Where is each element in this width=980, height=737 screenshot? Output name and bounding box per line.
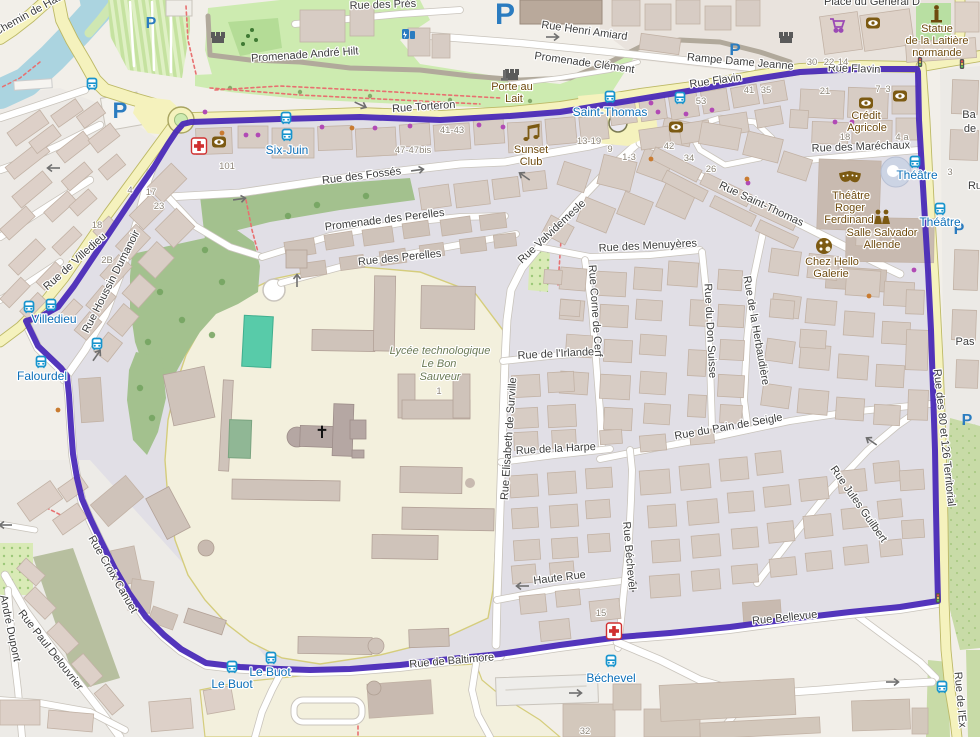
svg-text:de la Laitière: de la Laitière — [906, 35, 969, 47]
svg-text:Ba: Ba — [962, 109, 976, 121]
svg-text:1: 1 — [436, 386, 441, 397]
svg-text:Saint-Thomas: Saint-Thomas — [573, 105, 648, 119]
svg-text:Lait: Lait — [505, 93, 523, 105]
svg-text:3: 3 — [885, 84, 890, 95]
svg-text:Rue Flavin: Rue Flavin — [828, 62, 881, 76]
svg-text:Salle Salvador: Salle Salvador — [847, 227, 918, 239]
svg-text:Le Buot: Le Buot — [211, 677, 253, 691]
svg-text:P: P — [495, 0, 515, 31]
svg-text:Le Buot: Le Buot — [249, 665, 291, 679]
svg-text:41: 41 — [744, 85, 755, 96]
svg-text:Roger: Roger — [835, 202, 865, 214]
svg-text:35: 35 — [761, 85, 772, 96]
svg-text:Place du Général D: Place du Général D — [824, 0, 920, 8]
svg-text:13-19: 13-19 — [577, 136, 601, 147]
svg-text:Ferdinand: Ferdinand — [824, 214, 874, 226]
svg-text:Villedieu: Villedieu — [31, 312, 76, 326]
svg-text:Allende: Allende — [864, 239, 901, 251]
svg-text:✝: ✝ — [315, 423, 329, 442]
svg-text:de: de — [964, 123, 976, 135]
svg-text:47-47bis: 47-47bis — [395, 145, 432, 156]
svg-text:14: 14 — [838, 57, 849, 68]
svg-text:Ru: Ru — [968, 180, 980, 192]
svg-text:Théâtre: Théâtre — [919, 215, 961, 229]
svg-text:21: 21 — [820, 86, 831, 97]
svg-text:30: 30 — [807, 57, 818, 68]
svg-text:Sauveur: Sauveur — [420, 371, 462, 383]
svg-text:23: 23 — [154, 201, 165, 212]
svg-text:Porte au: Porte au — [491, 81, 533, 93]
svg-text:Le Bon: Le Bon — [422, 358, 457, 370]
svg-text:Six-Juin: Six-Juin — [266, 143, 309, 157]
svg-text:Théâtre: Théâtre — [896, 168, 938, 182]
svg-text:17: 17 — [146, 187, 157, 198]
svg-text:Sunset: Sunset — [514, 144, 548, 156]
svg-text:22: 22 — [824, 57, 835, 68]
svg-text:Théâtre: Théâtre — [832, 190, 870, 202]
svg-text:15: 15 — [596, 608, 607, 619]
svg-text:4: 4 — [127, 185, 132, 196]
svg-text:Statue: Statue — [921, 23, 953, 35]
svg-text:32: 32 — [580, 726, 591, 737]
svg-text:normande: normande — [912, 47, 962, 59]
svg-text:P: P — [962, 412, 973, 429]
svg-text:Club: Club — [520, 156, 543, 168]
svg-text:34: 34 — [684, 153, 695, 164]
svg-text:18: 18 — [840, 132, 851, 143]
svg-text:Galerie: Galerie — [813, 268, 848, 280]
svg-text:Crédit: Crédit — [851, 110, 880, 122]
svg-text:42: 42 — [664, 141, 675, 152]
svg-text:P: P — [113, 98, 128, 123]
svg-text:53: 53 — [696, 96, 707, 107]
svg-text:2B: 2B — [101, 255, 113, 266]
svg-text:Pas: Pas — [956, 336, 975, 348]
svg-text:3: 3 — [947, 167, 952, 178]
svg-text:41-43: 41-43 — [440, 125, 464, 136]
svg-text:1-3: 1-3 — [622, 152, 636, 163]
svg-text:P: P — [146, 15, 157, 32]
svg-text:Lycée technologique: Lycée technologique — [390, 345, 491, 357]
svg-text:Chez Hello: Chez Hello — [805, 256, 859, 268]
svg-text:Agricole: Agricole — [847, 122, 887, 134]
svg-text:7: 7 — [875, 84, 880, 95]
svg-text:Falourdel: Falourdel — [17, 369, 67, 383]
svg-text:101: 101 — [219, 161, 235, 172]
svg-text:26: 26 — [706, 164, 717, 175]
svg-text:18: 18 — [92, 220, 103, 231]
svg-text:Béchevel: Béchevel — [586, 671, 635, 685]
svg-text:9: 9 — [607, 144, 612, 155]
svg-text:4 a: 4 a — [895, 132, 909, 143]
